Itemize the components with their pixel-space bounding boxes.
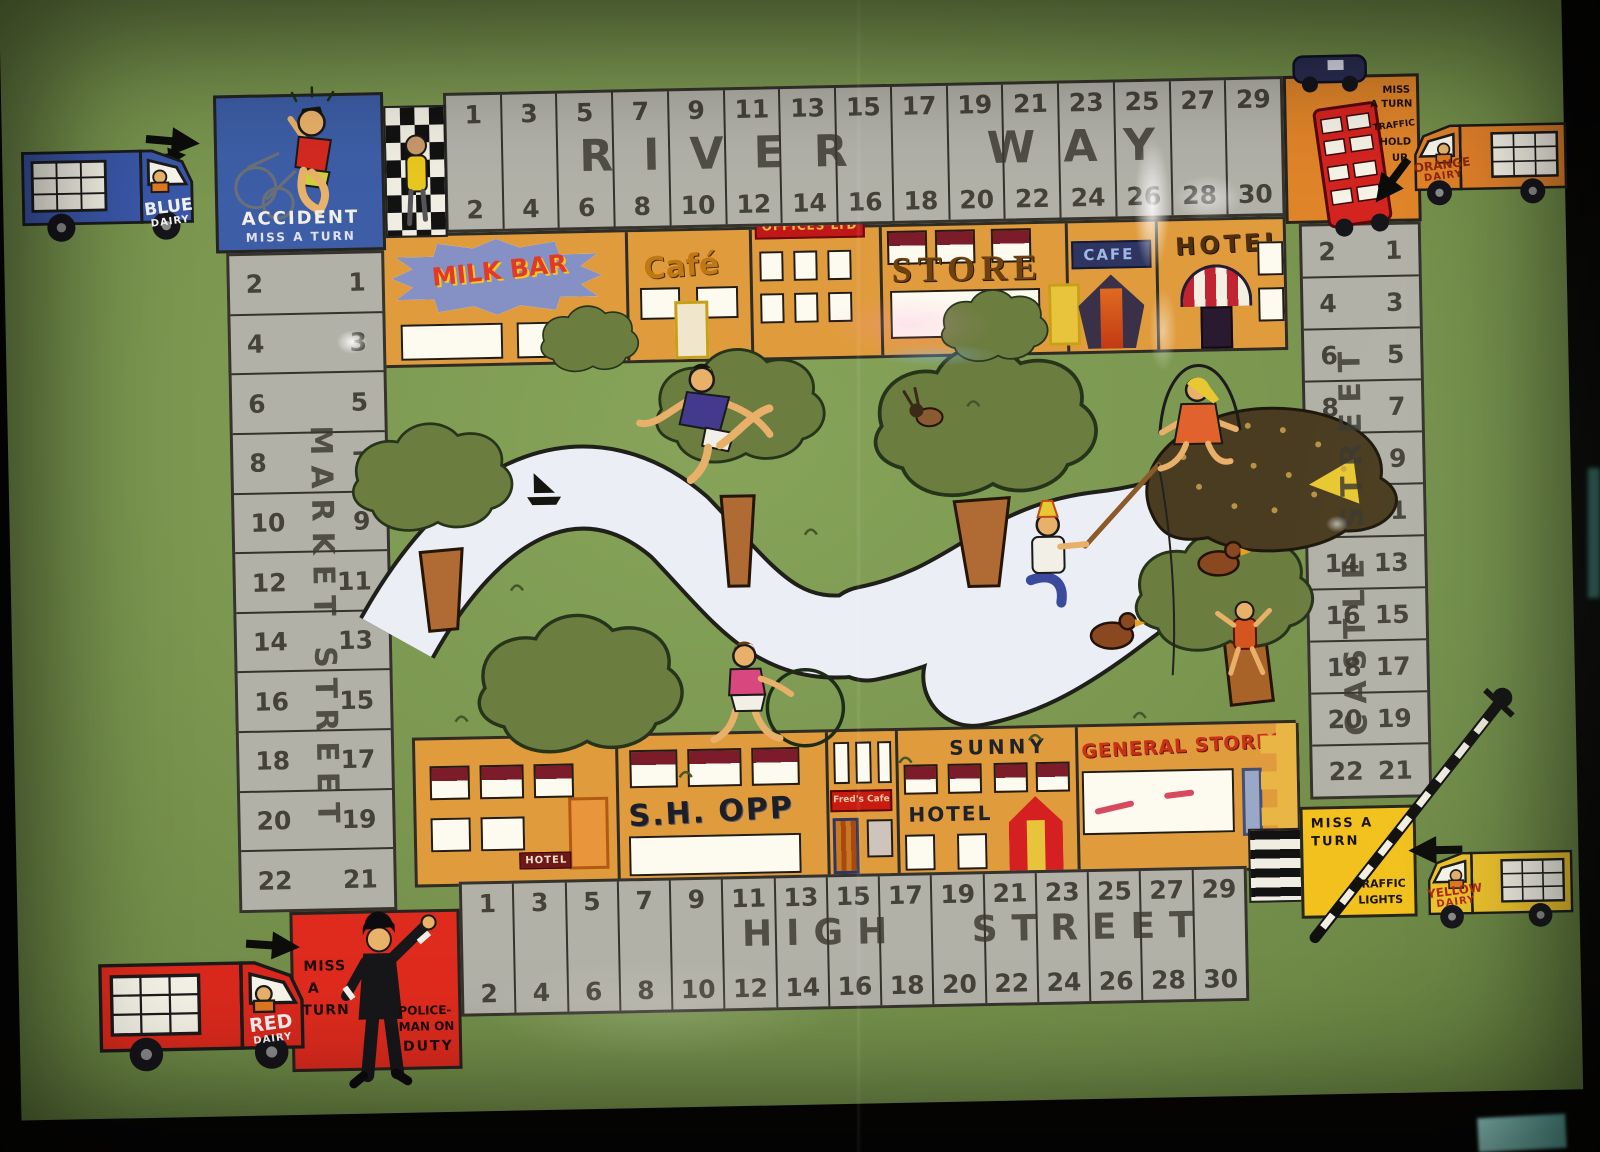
track-cell: 65 <box>1304 328 1421 382</box>
shop-window <box>760 293 785 323</box>
cell-number: 30 <box>1228 179 1282 209</box>
cell-number: 10 <box>1322 444 1357 474</box>
cell-number: 2 <box>1318 237 1336 266</box>
pedestrian-figure <box>385 107 446 236</box>
cell-number: 25 <box>1089 876 1140 906</box>
cell-number: 9 <box>671 884 722 914</box>
duck-icon <box>1198 542 1252 576</box>
shop-window-curtained <box>429 765 470 800</box>
track-cell: 1211 <box>1307 484 1424 538</box>
cell-number: 27 <box>1171 85 1225 115</box>
cell-number: 20 <box>256 806 291 836</box>
track-cell: 87 <box>1305 380 1422 434</box>
tree-canopy <box>1135 530 1314 652</box>
zebra-crossing <box>383 105 448 238</box>
track-cell: 1112 <box>725 89 783 224</box>
track-cell: 65 <box>232 372 385 435</box>
cell-number: 11 <box>723 883 774 913</box>
hotel-door <box>1200 306 1233 349</box>
cell-number: 8 <box>615 191 669 221</box>
track-cell: 1920 <box>948 85 1006 220</box>
facade-divider <box>879 227 885 355</box>
car-figure <box>1293 55 1366 92</box>
track-cell: 78 <box>613 91 671 226</box>
cell-number: 12 <box>725 973 776 1003</box>
cell-number: 21 <box>985 878 1036 908</box>
shop-window <box>794 292 819 322</box>
cafe2-sign: CAFE <box>1083 245 1134 264</box>
cell-number: 4 <box>516 978 567 1008</box>
cell-number: 8 <box>249 449 267 478</box>
hotel-small-sign: HOTEL <box>525 855 567 867</box>
cell-number: 4 <box>1319 289 1337 318</box>
shop-display-window <box>629 833 802 876</box>
sunny-hotel-awning-stripe <box>1027 820 1046 872</box>
track-river-way: 1234567891011121314151617181920212223242… <box>443 76 1286 233</box>
shop-window-curtained <box>687 748 742 787</box>
miss-a-label: MISS A <box>1311 816 1374 832</box>
shop-window <box>957 833 988 870</box>
climbing-kid <box>1217 601 1270 673</box>
cell-number: 1 <box>348 268 366 297</box>
cell-number: 12 <box>251 568 286 598</box>
track-cell: 2324 <box>1059 82 1117 217</box>
tree-trunk <box>721 496 756 587</box>
cell-number: 14 <box>253 627 288 657</box>
shop-window-curtained <box>948 763 983 794</box>
track-cell: 2122 <box>1003 84 1061 219</box>
tree-trunk <box>954 498 1011 587</box>
cafe-sign: Café <box>642 246 720 286</box>
cell-number: 15 <box>836 92 890 122</box>
shop-window-curtained <box>994 762 1029 793</box>
track-cell: 2526 <box>1115 81 1173 216</box>
cell-number: 2 <box>448 195 502 225</box>
cell-number: 6 <box>1320 340 1338 369</box>
cell-number: 8 <box>1321 392 1339 421</box>
shops-row-top: MILK BAR Café OFFICES LTD STORE <box>374 216 1289 368</box>
milk-bar-sign-burst: MILK BAR <box>391 237 602 317</box>
cafe-door <box>674 301 709 360</box>
track-cell: 2019 <box>240 790 393 853</box>
cell-number: 18 <box>894 186 948 216</box>
hotel-small-door <box>568 797 609 870</box>
cell-number: 5 <box>1387 339 1405 368</box>
shop-window <box>517 321 602 359</box>
track-cell: 1314 <box>780 88 838 223</box>
track-cell: 1920 <box>932 874 987 1004</box>
track-cell: 1413 <box>236 611 389 674</box>
track-cell: 2221 <box>241 849 394 910</box>
shop-window <box>828 292 853 322</box>
track-cell: 1112 <box>723 878 778 1008</box>
cell-number: 23 <box>1037 877 1088 907</box>
turn-label: TURN <box>1311 835 1360 851</box>
track-cell: 2526 <box>1089 871 1144 1001</box>
blue-dairy-van: BLUEDAIRY <box>6 107 214 261</box>
track-cell: 1413 <box>1308 536 1425 590</box>
track-cell: 2930 <box>1193 869 1246 999</box>
cell-number: 11 <box>725 94 779 124</box>
duck-icon <box>1091 613 1147 649</box>
cell-number: 14 <box>777 972 828 1002</box>
shop-window-curtained <box>479 764 524 799</box>
cell-number: 1 <box>1385 235 1403 264</box>
shop-window <box>833 742 850 784</box>
shop-window-curtained <box>904 764 939 795</box>
cell-number: 21 <box>1003 89 1057 119</box>
cell-number: 6 <box>559 192 613 222</box>
cell-number: 28 <box>1143 965 1194 995</box>
traffic-label: TRAFFIC <box>1354 878 1406 892</box>
store-door <box>1048 283 1081 346</box>
cell-number: 1 <box>446 100 500 130</box>
cell-number: 14 <box>1324 548 1359 578</box>
cell-number: 9 <box>669 95 723 125</box>
track-cell: 43 <box>230 313 383 376</box>
shop-window <box>877 741 892 783</box>
hotel-awning <box>1180 264 1253 307</box>
cell-number: 20 <box>934 969 985 999</box>
red-dairy-van: REDDAIRY <box>85 910 324 1095</box>
corner-accident: ACCIDENT MISS A TURN <box>213 92 386 253</box>
cell-number: 30 <box>1195 964 1246 994</box>
shop-window-curtained <box>629 749 678 788</box>
lights-label: LIGHTS <box>1358 894 1403 908</box>
cell-number: 6 <box>568 977 619 1007</box>
cell-number: 16 <box>830 971 881 1001</box>
cell-number: 17 <box>892 91 946 121</box>
sunny-hotel-sign-line2: HOTEL <box>908 801 992 827</box>
cell-number: 7 <box>352 447 370 476</box>
shop-window <box>827 250 852 280</box>
toy-boat-icon <box>527 473 562 506</box>
track-cell: 1615 <box>238 671 391 734</box>
track-cell: 2930 <box>1226 79 1282 214</box>
track-cell: 87 <box>233 432 386 495</box>
store-display-window <box>890 288 1041 339</box>
cell-number: 12 <box>1323 496 1358 526</box>
cell-number: 19 <box>948 90 1002 120</box>
track-cell: 56 <box>557 92 615 227</box>
cell-number: 9 <box>353 506 371 535</box>
shop-window <box>481 816 526 851</box>
skipping-girl <box>1159 365 1241 469</box>
track-cell: 34 <box>514 883 569 1013</box>
cell-number: 29 <box>1226 84 1280 114</box>
track-cell: 1211 <box>235 551 388 614</box>
leaping-man <box>638 362 770 481</box>
tree-canopy <box>655 348 825 463</box>
cell-number: 9 <box>1389 443 1407 472</box>
tree-canopy <box>874 345 1098 497</box>
shop-window <box>793 250 818 280</box>
cell-number: 11 <box>1372 495 1407 525</box>
store-sign: STORE <box>891 246 1043 291</box>
cell-number: 24 <box>1061 182 1115 212</box>
orange-dairy-van: ORANGEDAIRY <box>1399 84 1577 222</box>
cell-number: 6 <box>248 389 266 418</box>
tree-trunk <box>420 549 464 632</box>
fishing-boy <box>1029 464 1176 677</box>
cell-number: 17 <box>880 880 931 910</box>
track-cell: 109 <box>234 492 387 555</box>
cell-number: 23 <box>1059 87 1113 117</box>
facade-divider <box>749 230 755 358</box>
tree-trunk <box>1215 552 1273 705</box>
cell-number: 7 <box>1388 391 1406 420</box>
cell-number: 19 <box>932 879 983 909</box>
cell-number: 12 <box>727 189 781 219</box>
freds-door <box>833 818 860 875</box>
display-case-reflection <box>1477 1114 1567 1152</box>
shop-window <box>867 819 894 858</box>
cell-number: 8 <box>621 976 672 1006</box>
cell-number: 3 <box>1386 287 1404 316</box>
track-cell: 1718 <box>892 86 950 221</box>
shop-window <box>1258 287 1285 322</box>
game-board: MILK BAR Café OFFICES LTD STORE <box>0 0 1583 1121</box>
cell-number: 10 <box>671 190 725 220</box>
shops-row-bottom: HOTEL S.H. OPP Fred's Cafe SUNNY HOTEL <box>412 720 1299 888</box>
track-cell: 1615 <box>1309 588 1426 642</box>
track-cell: 2324 <box>1037 872 1092 1002</box>
track-cell: 1817 <box>239 730 392 793</box>
shop-window <box>759 251 784 281</box>
track-cell: 2122 <box>984 873 1039 1003</box>
cell-number: 11 <box>337 566 372 596</box>
cell-number: 19 <box>341 804 376 834</box>
river <box>394 473 1293 688</box>
shop-window-curtained <box>1036 761 1071 792</box>
display-case-photo: MILK BAR Café OFFICES LTD STORE <box>0 0 1600 1152</box>
cell-number: 18 <box>255 747 290 777</box>
track-cell: 12 <box>446 95 504 230</box>
track-cell: 109 <box>1306 432 1423 486</box>
track-cell: 21 <box>229 253 382 316</box>
track-cell: 1314 <box>775 877 830 1007</box>
accident-label: ACCIDENT <box>218 207 382 231</box>
track-cell: 34 <box>502 94 560 229</box>
cell-number: 22 <box>1005 184 1059 214</box>
track-cell: 910 <box>669 90 727 225</box>
cell-number: 4 <box>504 194 558 224</box>
track-cell: 2728 <box>1170 80 1228 215</box>
track-cell: 43 <box>1303 276 1420 330</box>
shop-window-curtained <box>533 763 574 798</box>
shopp-sign: S.H. OPP <box>628 790 795 834</box>
facade-divider <box>895 731 901 875</box>
cell-number: 22 <box>257 866 292 896</box>
shop-window <box>855 741 872 783</box>
cell-number: 20 <box>950 185 1004 215</box>
cell-number: 29 <box>1194 874 1245 904</box>
rabbit-icon <box>904 388 943 427</box>
cell-number: 10 <box>250 508 285 538</box>
track-cell: 2728 <box>1141 870 1196 1000</box>
cell-number: 15 <box>339 685 374 715</box>
facade-divider <box>615 737 621 881</box>
cell-number: 26 <box>1091 966 1142 996</box>
shop-window <box>905 834 936 871</box>
cell-number: 16 <box>254 687 289 717</box>
general-stores-window <box>1082 768 1235 835</box>
track-cell: 56 <box>566 882 621 1012</box>
cell-number: 2 <box>245 270 263 299</box>
shop-window <box>1257 241 1284 276</box>
yellow-dairy-van: YELLOWDAIRY <box>1414 806 1583 952</box>
cell-number: 13 <box>780 93 834 123</box>
cell-number: 16 <box>838 187 892 217</box>
track-cell: 1516 <box>828 876 883 1006</box>
cell-number: 18 <box>882 970 933 1000</box>
cell-number: 15 <box>828 881 879 911</box>
track-cell: 910 <box>671 879 726 1009</box>
shop-window <box>401 323 504 361</box>
cell-number: 28 <box>1172 180 1226 210</box>
cell-number: 5 <box>566 887 617 917</box>
cell-number: 5 <box>350 387 368 416</box>
cell-number: 15 <box>1375 599 1410 629</box>
general-stores-sign: GENERAL STORES <box>1081 730 1286 763</box>
cell-number: 14 <box>782 188 836 218</box>
general-stores-door <box>1242 768 1263 836</box>
display-case-reflection <box>1588 468 1600 598</box>
track-cell: 1718 <box>880 875 935 1005</box>
police-label: POLICE- <box>398 1004 451 1019</box>
facade-divider <box>625 232 631 360</box>
shop-window <box>431 817 472 852</box>
sunny-hotel-sign-line1: SUNNY <box>949 734 1048 760</box>
facade-divider <box>1155 222 1161 350</box>
cell-number: 5 <box>558 98 612 128</box>
cell-number: 22 <box>986 968 1037 998</box>
cell-number: 25 <box>1115 86 1169 116</box>
cell-number: 3 <box>514 888 565 918</box>
cell-number: 18 <box>1326 652 1361 682</box>
cell-number: 10 <box>673 974 724 1004</box>
man-on-label: MAN ON <box>399 1020 455 1035</box>
cell-number: 4 <box>247 329 265 358</box>
cell-number: 21 <box>343 864 378 894</box>
cell-number: 17 <box>1376 651 1411 681</box>
cafe2-tent-stripe <box>1100 288 1123 348</box>
cell-number: 3 <box>502 99 556 129</box>
cell-number: 17 <box>340 745 375 775</box>
track-cell: 78 <box>619 880 674 1010</box>
cell-number: 7 <box>613 96 667 126</box>
track-market-street: 21436587109121114131615181720192221 <box>226 250 397 913</box>
cell-number: 16 <box>1325 600 1360 630</box>
cell-number: 13 <box>775 882 826 912</box>
cell-number: 13 <box>1373 547 1408 577</box>
cell-number: 24 <box>1039 967 1090 997</box>
freds-sign: Fred's Cafe <box>833 794 890 805</box>
facade-divider <box>1075 727 1081 871</box>
cell-number: 3 <box>349 327 367 356</box>
cell-number: 13 <box>338 626 373 656</box>
river-outline <box>394 473 1293 688</box>
shop-window-curtained <box>751 747 800 786</box>
cell-number: 7 <box>619 886 670 916</box>
track-high-street: 1234567891011121314151617181920212223242… <box>459 866 1250 1017</box>
milk-bar-sign: MILK BAR <box>419 250 581 291</box>
duty-label: DUTY <box>403 1038 454 1055</box>
corner-traffic-lights: MISS A TURN TRAFFIC LIGHTS <box>1299 805 1417 919</box>
cell-number: 27 <box>1141 875 1192 905</box>
cell-number: 26 <box>1117 181 1171 211</box>
track-cell: 1516 <box>836 87 894 222</box>
